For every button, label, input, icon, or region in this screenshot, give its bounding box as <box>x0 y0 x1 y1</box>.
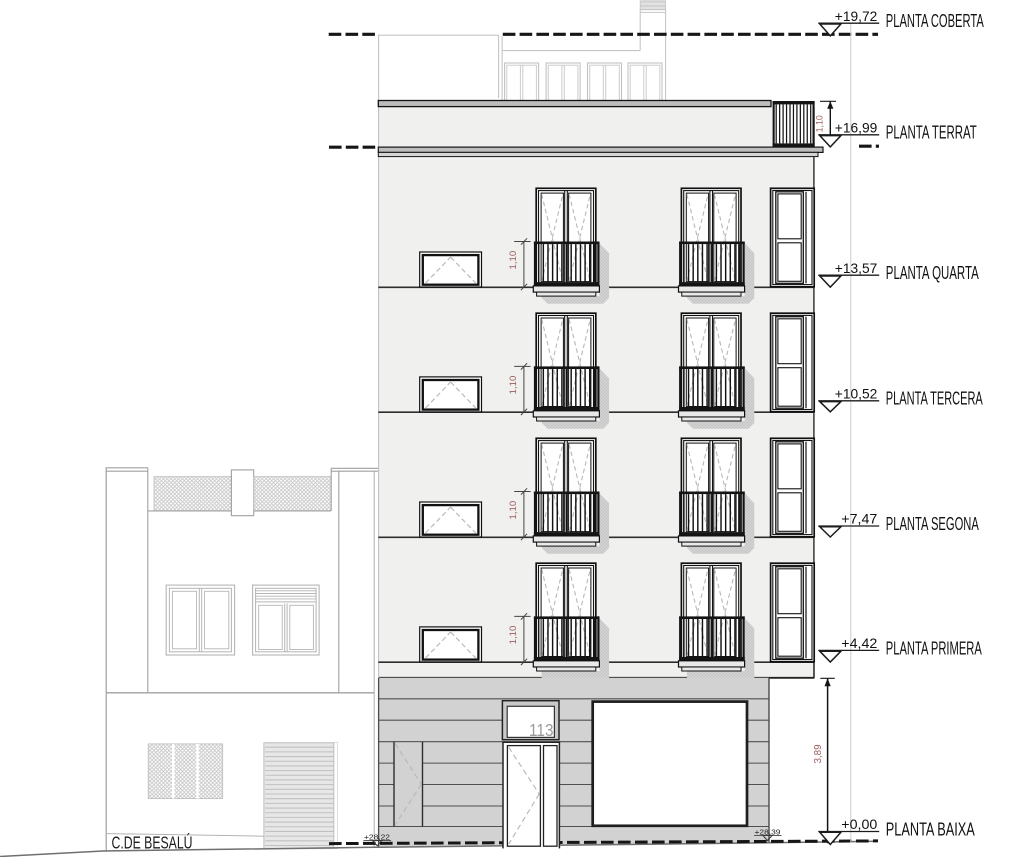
svg-text:1,10: 1,10 <box>508 376 519 395</box>
svg-text:1,10: 1,10 <box>508 251 519 270</box>
svg-text:PLANTA QUARTA: PLANTA QUARTA <box>886 262 979 283</box>
svg-text:1,10: 1,10 <box>815 115 825 132</box>
svg-text:1,10: 1,10 <box>508 626 519 645</box>
svg-text:113: 113 <box>529 720 554 740</box>
svg-text:3,89: 3,89 <box>813 744 824 763</box>
svg-text:+16,99: +16,99 <box>835 120 878 136</box>
svg-text:1,10: 1,10 <box>508 501 519 520</box>
svg-text:PLANTA TERRAT: PLANTA TERRAT <box>886 122 977 143</box>
svg-text:+10,52: +10,52 <box>835 386 878 402</box>
svg-text:C.DE BESALÚ: C.DE BESALÚ <box>112 831 193 852</box>
svg-text:+13,57: +13,57 <box>835 260 878 276</box>
svg-text:+0,00: +0,00 <box>841 816 877 832</box>
svg-text:+19,72: +19,72 <box>835 8 878 24</box>
svg-text:PLANTA SEGONA: PLANTA SEGONA <box>886 513 979 534</box>
svg-text:PLANTA BAIXA: PLANTA BAIXA <box>886 818 975 839</box>
svg-text:+7,47: +7,47 <box>841 511 877 527</box>
svg-text:+28,22: +28,22 <box>364 832 390 841</box>
svg-text:PLANTA COBERTA: PLANTA COBERTA <box>886 10 984 31</box>
svg-text:+4,42: +4,42 <box>841 635 877 651</box>
svg-text:PLANTA TERCERA: PLANTA TERCERA <box>886 388 983 409</box>
svg-text:PLANTA PRIMERA: PLANTA PRIMERA <box>886 637 982 658</box>
